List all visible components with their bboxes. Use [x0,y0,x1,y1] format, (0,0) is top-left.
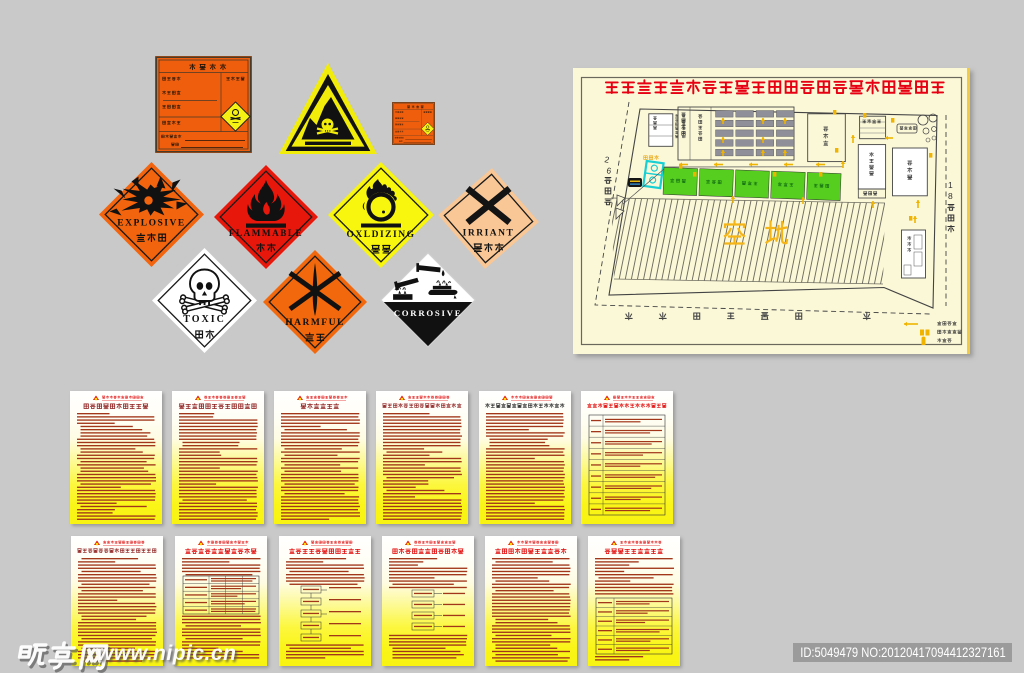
svg-text:FLAMMABLE: FLAMMABLE [229,228,303,238]
svg-text:6: 6 [606,165,613,176]
svg-text:CORROSIVE: CORROSIVE [394,308,463,318]
svg-text:EXPLOSIVE: EXPLOSIVE [117,219,185,229]
svg-text:IRRIANT: IRRIANT [462,228,514,238]
svg-text:1: 1 [948,180,953,190]
svg-text:TOXIC: TOXIC [183,314,226,325]
svg-text:8: 8 [948,191,953,201]
svg-text:2: 2 [604,154,611,165]
svg-text:OXLDIZING: OXLDIZING [346,230,415,240]
svg-text:HARMFUL: HARMFUL [285,318,345,328]
